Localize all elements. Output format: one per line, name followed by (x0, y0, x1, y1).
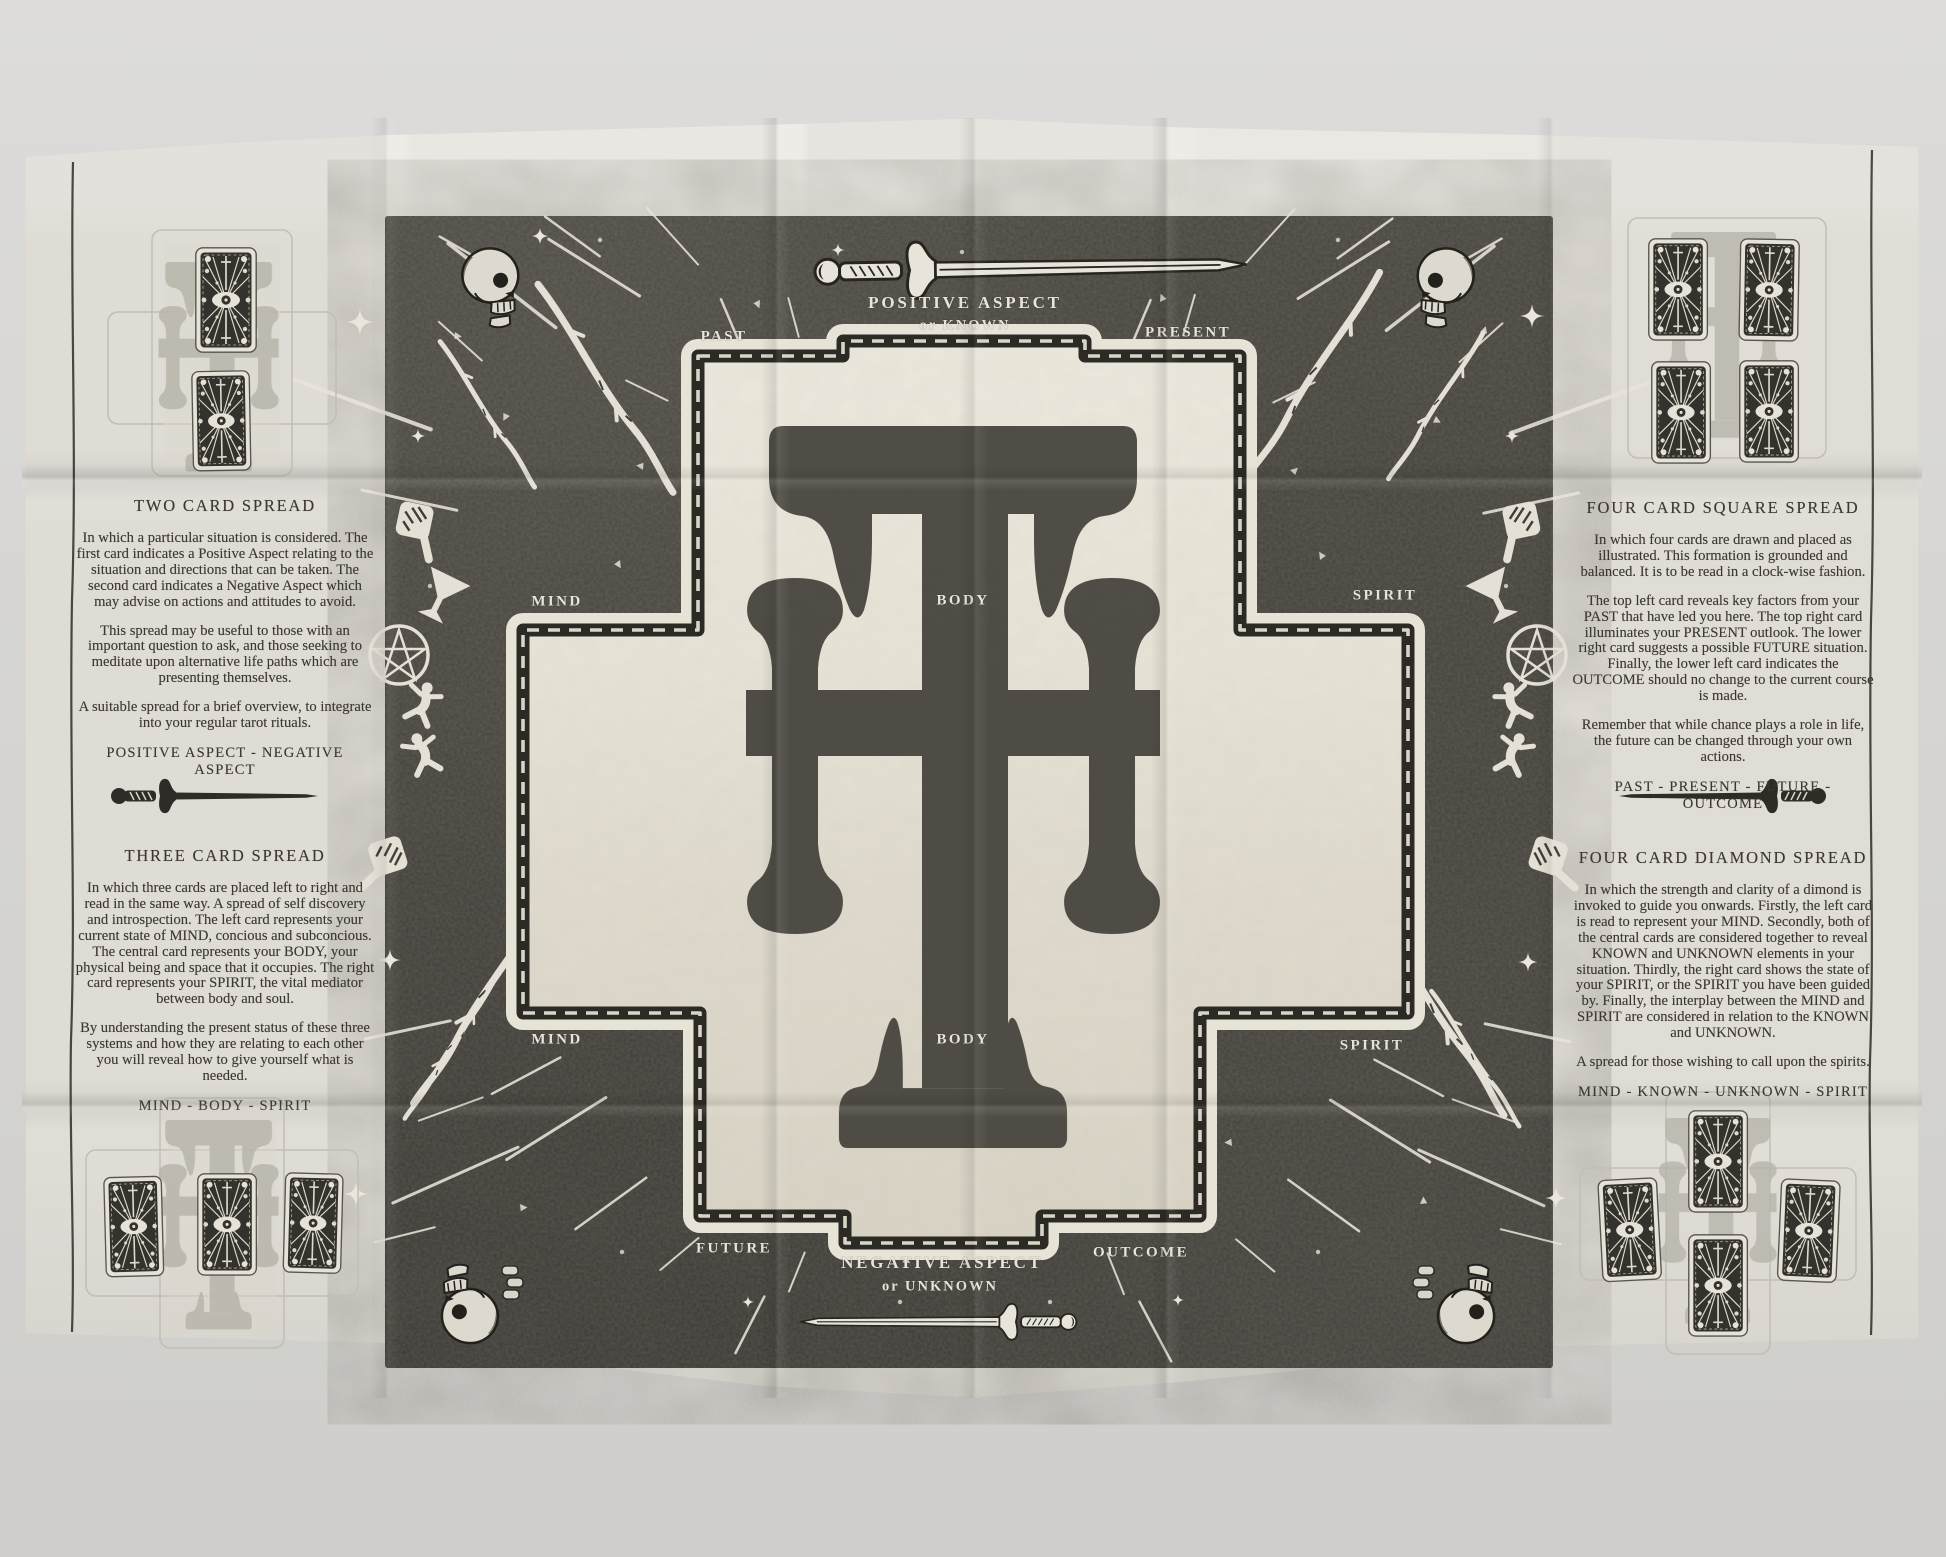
section-paragraph: In which the strength and clarity of a d… (1572, 883, 1874, 1042)
label-past: PAST (701, 329, 748, 346)
label-positive-aspect: POSITIVE ASPECT (868, 293, 1062, 313)
card-back-icon (1689, 1111, 1748, 1212)
card-back-icon (1689, 1235, 1748, 1336)
card-back-icon (196, 248, 256, 352)
four-card-diamond-diagram (1580, 1092, 1856, 1354)
four-card-diamond-section: FOUR CARD DIAMOND SPREAD In which the st… (1572, 848, 1874, 1101)
three-card-spread-section: THREE CARD SPREAD In which three cards a… (74, 846, 376, 1115)
card-back-icon (104, 1176, 164, 1277)
dot-decoration (898, 1300, 902, 1304)
label-spirit-bottom: SPIRIT (1340, 1038, 1404, 1055)
section-keywords: PAST - PRESENT - FUTURE - OUTCOME (1572, 779, 1874, 813)
card-back-icon (1740, 361, 1799, 462)
dot-decoration (1048, 1300, 1052, 1304)
section-title: THREE CARD SPREAD (74, 846, 376, 866)
section-paragraph: Remember that while chance plays a role … (1572, 718, 1874, 766)
card-back-icon (1649, 239, 1708, 340)
card-back-icon (1739, 239, 1799, 341)
section-title: FOUR CARD SQUARE SPREAD (1572, 498, 1874, 518)
label-or-known: or KNOWN (919, 318, 1010, 335)
section-paragraph: The top left card reveals key factors fr… (1572, 594, 1874, 705)
three-card-spread-diagram (86, 1098, 358, 1348)
dot-decoration (1504, 584, 1508, 588)
label-outcome: OUTCOME (1093, 1245, 1189, 1262)
section-paragraph: A suitable spread for a brief overview, … (74, 700, 376, 732)
section-title: TWO CARD SPREAD (74, 496, 376, 516)
label-body-bottom: BODY (937, 1032, 990, 1049)
section-paragraph: This spread may be useful to those with … (74, 624, 376, 688)
label-spirit-top: SPIRIT (1353, 588, 1417, 605)
dot-decoration (960, 250, 964, 254)
dot-decoration (428, 584, 432, 588)
section-paragraph: By understanding the present status of t… (74, 1021, 376, 1085)
label-mind-bottom: MIND (531, 1032, 582, 1049)
label-future: FUTURE (696, 1241, 772, 1258)
tarot-instruction-sheet-photo: POSITIVE ASPECT or KNOWN PAST PRESENT MI… (0, 0, 1946, 1557)
label-present: PRESENT (1145, 325, 1231, 342)
two-card-spread-section: TWO CARD SPREAD In which a particular si… (74, 496, 376, 779)
label-body-top: BODY (937, 593, 990, 610)
sparkle-icon (344, 1182, 368, 1206)
section-paragraph: In which four cards are drawn and placed… (1572, 533, 1874, 581)
card-back-icon (1598, 1178, 1662, 1282)
card-back-icon (283, 1173, 343, 1274)
section-keywords: MIND - KNOWN - UNKNOWN - SPIRIT (1572, 1084, 1874, 1101)
dot-decoration (620, 1250, 624, 1254)
label-mind-top: MIND (531, 594, 582, 611)
label-or-unknown: or UNKNOWN (882, 1279, 998, 1296)
two-card-spread-diagram (108, 230, 336, 476)
card-back-icon (1652, 362, 1711, 463)
section-paragraph: A spread for those wishing to call upon … (1572, 1055, 1874, 1071)
section-title: FOUR CARD DIAMOND SPREAD (1572, 848, 1874, 868)
dot-decoration (1336, 238, 1340, 242)
section-paragraph: In which three cards are placed left to … (74, 881, 376, 1008)
section-paragraph: In which a particular situation is consi… (74, 531, 376, 611)
four-card-square-diagram (1628, 218, 1826, 463)
dot-decoration (1316, 1250, 1320, 1254)
dot-decoration (598, 238, 602, 242)
section-keywords: MIND - BODY - SPIRIT (74, 1098, 376, 1115)
sword-icon (111, 779, 318, 813)
four-card-square-section: FOUR CARD SQUARE SPREAD In which four ca… (1572, 498, 1874, 813)
card-back-icon (198, 1174, 257, 1275)
label-negative-aspect: NEGATIVE ASPECT (841, 1253, 1043, 1273)
card-back-icon (192, 371, 251, 471)
sparkle-icon (347, 309, 373, 335)
card-back-icon (1777, 1179, 1840, 1283)
section-keywords: POSITIVE ASPECT - NEGATIVE ASPECT (74, 745, 376, 779)
